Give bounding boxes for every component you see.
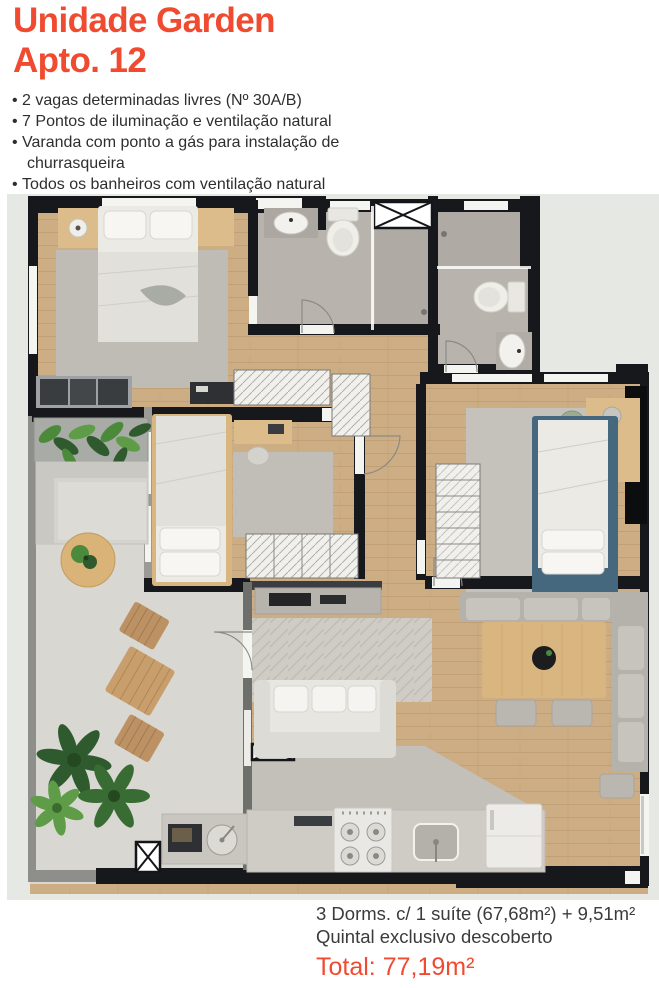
closet-shelves — [246, 534, 358, 578]
floor-plan — [0, 194, 659, 904]
shower-glass — [437, 266, 531, 269]
feature-list: 2 vagas determinadas livres (Nº 30A/B) 7… — [12, 90, 437, 195]
social-shower-floor — [437, 206, 531, 268]
closet-shelves — [234, 370, 330, 405]
sink-icon — [274, 212, 308, 234]
area-description-line2: Quintal exclusivo descoberto — [316, 925, 635, 948]
shower-drain — [421, 309, 427, 315]
feature-item: Todos os banheiros com ventilação natura… — [12, 174, 437, 195]
floor-plan-figure — [0, 194, 659, 904]
sofa — [254, 680, 396, 758]
open-closet — [436, 464, 480, 578]
chair — [552, 700, 592, 726]
tv-console — [255, 588, 381, 614]
chair — [247, 447, 269, 465]
fridge-icon — [486, 804, 542, 868]
page-title-line2: Apto. 12 — [13, 41, 275, 81]
sink-icon — [496, 332, 532, 370]
double-bed — [98, 206, 198, 342]
shower-glass — [371, 206, 374, 330]
feature-item: Varanda com ponto a gás para instalação … — [12, 132, 437, 174]
dresser — [190, 382, 234, 404]
tv-icon — [269, 593, 311, 606]
hallway-closet — [332, 374, 370, 436]
header: Unidade Garden Apto. 12 — [13, 1, 275, 81]
chair — [600, 774, 634, 798]
total-area: Total: 77,19m² — [316, 952, 635, 982]
chair — [496, 700, 536, 726]
kitchen-sink-icon — [414, 824, 458, 862]
outdoor-bench — [36, 462, 148, 544]
single-bed — [532, 416, 618, 594]
feature-item: 2 vagas determinadas livres (Nº 30A/B) — [12, 90, 437, 111]
page-title-line1: Unidade Garden — [13, 1, 275, 41]
round-table — [61, 533, 115, 587]
footer: 3 Dorms. c/ 1 suíte (67,68m²) + 9,51m² Q… — [316, 902, 635, 982]
kitchen — [247, 804, 545, 872]
toilet-icon — [474, 282, 525, 312]
bedroom2-rug — [233, 452, 333, 537]
toilet-icon — [327, 208, 359, 256]
apartment-flyer: Unidade Garden Apto. 12 2 vagas determin… — [0, 0, 659, 988]
stove-icon — [334, 808, 392, 872]
area-description-line1: 3 Dorms. c/ 1 suíte (67,68m²) + 9,51m² — [316, 902, 635, 925]
dining-table — [482, 622, 606, 698]
wardrobe — [36, 376, 132, 408]
barbecue-counter — [162, 814, 247, 864]
feature-item: 7 Pontos de iluminação e ventilação natu… — [12, 111, 437, 132]
nightstand — [198, 208, 234, 246]
single-bed — [152, 414, 232, 586]
